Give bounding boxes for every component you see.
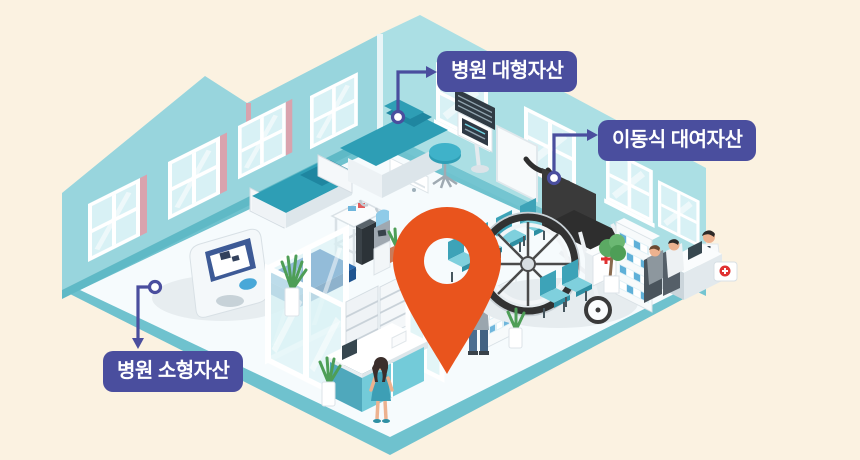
first-aid-kit [714, 262, 737, 281]
arrow-down-icon [132, 338, 144, 349]
anchor-dot [393, 112, 404, 123]
plant-hall [508, 309, 524, 348]
callout-hospital-small-assets: 병원 소형자산 [103, 351, 243, 392]
anchor-dot [549, 173, 560, 184]
callout-hospital-large-assets: 병원 대형자산 [437, 51, 577, 92]
anchor-dot [150, 282, 161, 293]
wall-corner-strip [377, 34, 383, 131]
callout-mobile-rental-assets: 이동식 대여자산 [598, 120, 756, 161]
illustration-stage: 병원 대형자산 이동식 대여자산 병원 소형자산 [0, 0, 860, 460]
